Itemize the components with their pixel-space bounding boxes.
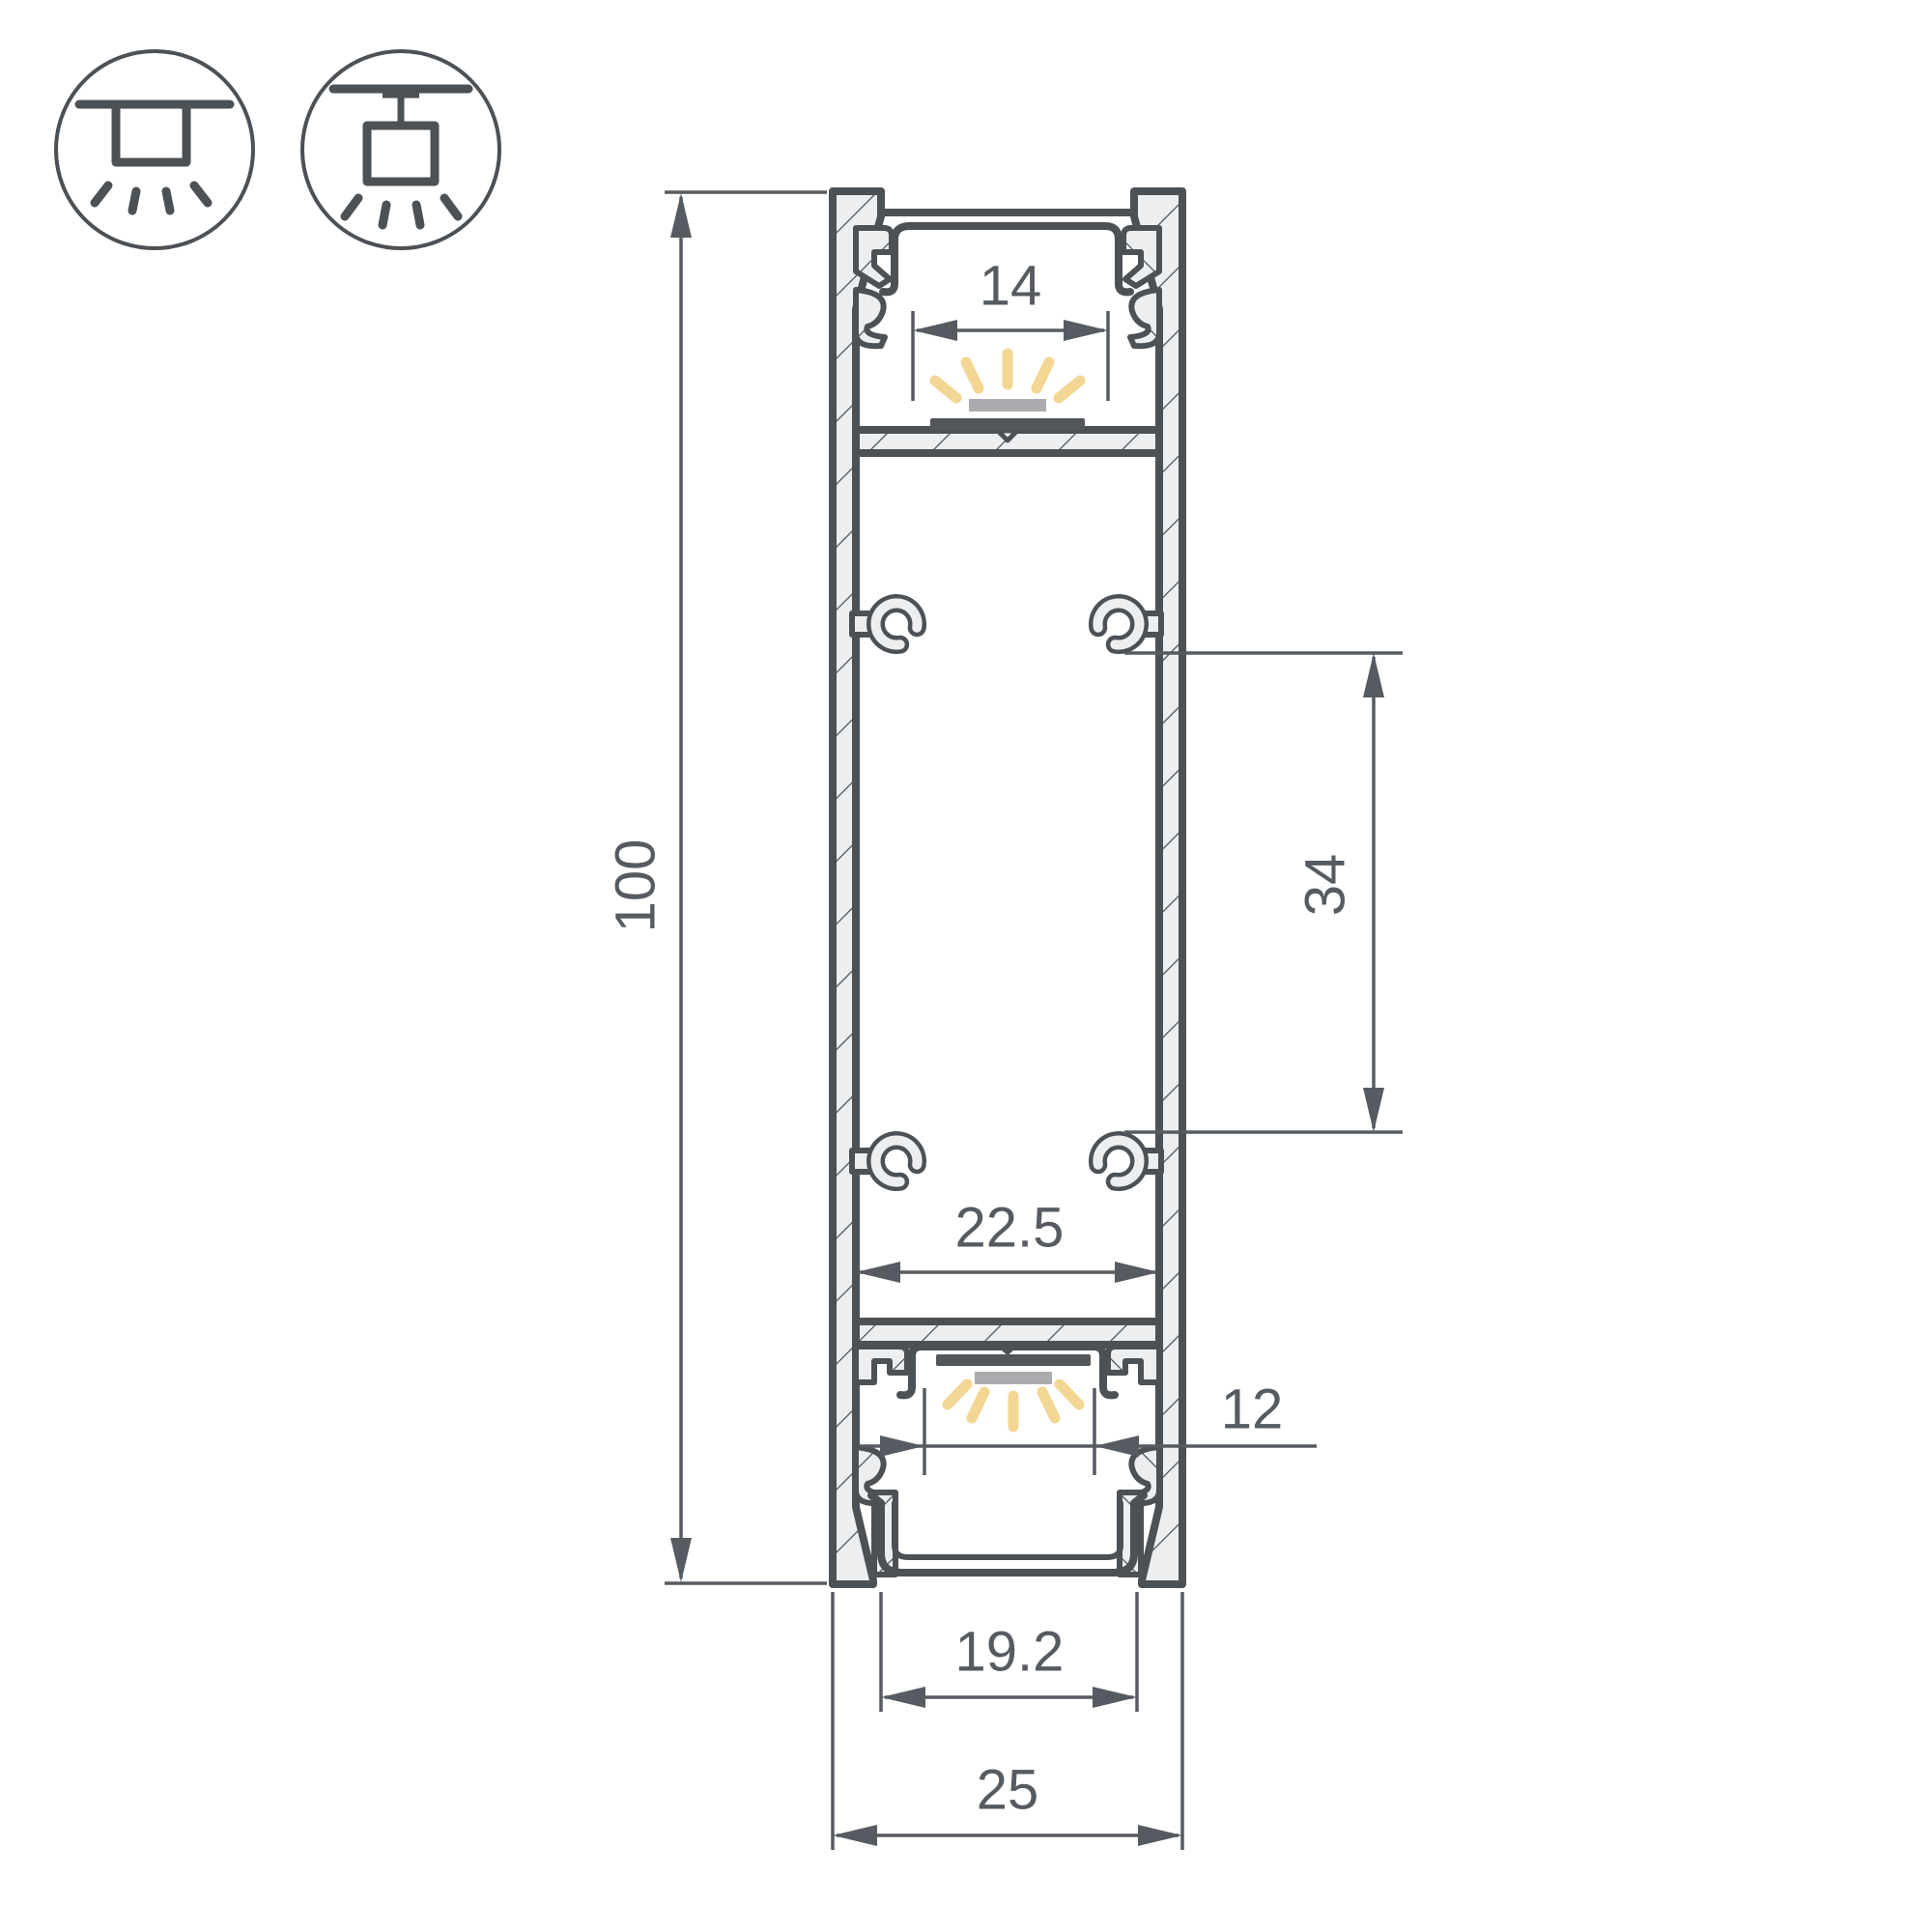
arrow-down <box>1363 1088 1384 1132</box>
bottom-divider-plate <box>856 1321 1159 1345</box>
dim-label-top-opening: 14 <box>980 255 1042 318</box>
light-rays-icon <box>345 198 458 225</box>
light-rays <box>948 1384 1079 1427</box>
cover-outer <box>871 1495 1144 1573</box>
dim-label-bottom-window: 12 <box>1221 1378 1284 1441</box>
arrow-right <box>1093 1687 1137 1708</box>
screw-boss-top-right <box>1097 604 1161 645</box>
arrow-up <box>1363 653 1384 697</box>
dim-label-height: 100 <box>605 839 668 933</box>
cover-inner <box>895 1503 1121 1557</box>
icon-circle <box>302 51 499 248</box>
technical-drawing: 100 14 34 22.5 12 19.2 <box>0 0 1932 1932</box>
dim-label-boss-spacing: 34 <box>1294 854 1357 917</box>
top-led-assembly <box>930 354 1085 430</box>
arrow-left <box>833 1825 877 1846</box>
drawing-canvas: 100 14 34 22.5 12 19.2 <box>0 0 1932 1932</box>
light-rays-icon <box>95 185 208 211</box>
arrow-right-inward <box>880 1435 924 1457</box>
arrow-left <box>856 1262 900 1283</box>
dim-label-inner-width: 22.5 <box>955 1197 1065 1260</box>
screw-boss-top-left <box>852 604 918 645</box>
dim-overall-height: 100 <box>605 192 828 1583</box>
icon-circle <box>56 51 253 248</box>
screw-boss-bottom-left <box>852 1141 918 1182</box>
dim-inner-width: 22.5 <box>856 1197 1159 1284</box>
dim-bottom-window: 12 <box>860 1378 1317 1476</box>
bottom-led-assembly <box>936 1354 1091 1427</box>
dim-bottom-channel: 19.2 <box>881 1592 1137 1712</box>
arrow-right <box>1115 1262 1159 1283</box>
bottom-channel-cover <box>871 1495 1144 1573</box>
arrow-left-inward <box>1094 1435 1139 1457</box>
mount-icon-surface <box>56 51 253 248</box>
arrow-left <box>881 1687 925 1708</box>
arrow-right <box>1138 1825 1182 1846</box>
mount-icon-pendant <box>302 51 499 248</box>
arrow-down <box>670 1538 692 1582</box>
screw-boss-bottom-right <box>1097 1141 1161 1182</box>
profile-cross-section <box>833 191 1182 1584</box>
luminaire-box <box>116 104 186 162</box>
arrow-left <box>913 320 957 341</box>
luminaire-box <box>367 126 435 182</box>
dim-label-bottom-channel: 19.2 <box>955 1621 1065 1684</box>
arrow-up <box>670 193 692 238</box>
led-module <box>969 399 1046 412</box>
led-module <box>975 1372 1052 1384</box>
led-strip-pcb <box>936 1354 1091 1366</box>
arrow-right <box>1064 320 1108 341</box>
led-strip-pcb <box>930 418 1085 430</box>
dim-label-overall-width: 25 <box>977 1759 1039 1822</box>
light-rays <box>935 354 1080 398</box>
